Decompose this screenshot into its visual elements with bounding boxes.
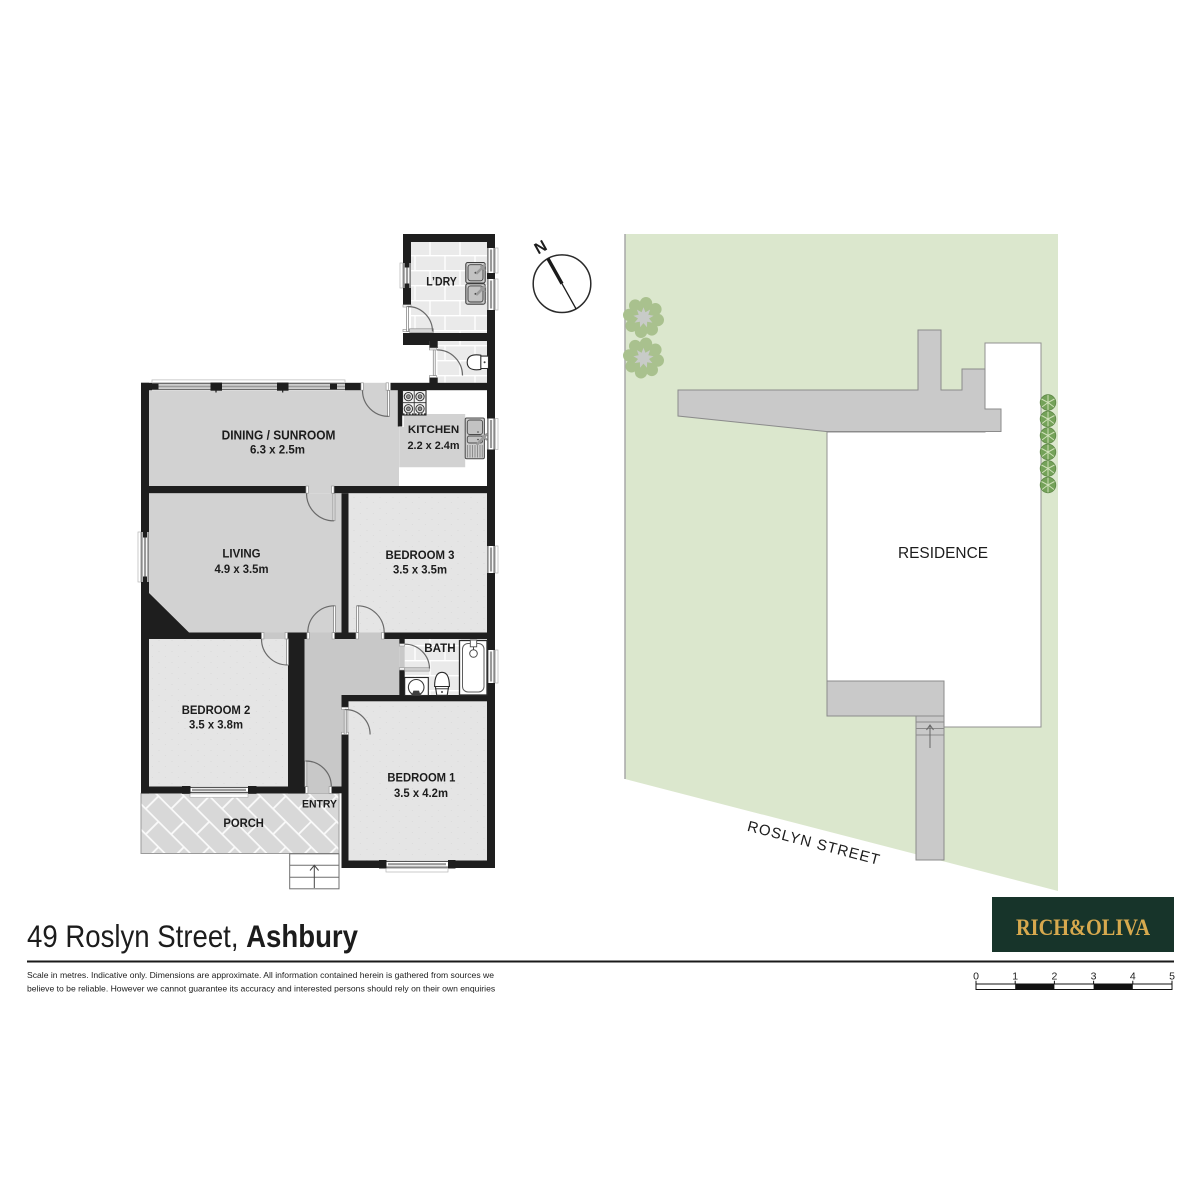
- svg-text:believe to be reliable. Howeve: believe to be reliable. However we canno…: [27, 984, 495, 994]
- svg-text:L’DRY: L’DRY: [426, 275, 457, 289]
- svg-text:Scale in metres. Indicative on: Scale in metres. Indicative only. Dimens…: [27, 970, 494, 980]
- svg-text:PORCH: PORCH: [223, 816, 264, 830]
- svg-text:N: N: [532, 238, 550, 258]
- svg-text:2.2 x 2.4m: 2.2 x 2.4m: [408, 440, 460, 452]
- svg-text:ENTRY: ENTRY: [302, 799, 338, 811]
- svg-text:LIVING: LIVING: [222, 547, 260, 561]
- svg-text:BEDROOM 3: BEDROOM 3: [386, 548, 455, 562]
- svg-text:BEDROOM 1: BEDROOM 1: [387, 771, 455, 785]
- svg-text:3.5 x 4.2m: 3.5 x 4.2m: [394, 786, 448, 800]
- svg-text:6.3 x 2.5m: 6.3 x 2.5m: [250, 443, 305, 457]
- svg-text:3.5 x 3.5m: 3.5 x 3.5m: [393, 563, 447, 577]
- svg-text:3.5 x 3.8m: 3.5 x 3.8m: [189, 718, 243, 732]
- svg-text:BATH: BATH: [424, 641, 455, 655]
- svg-text:49 Roslyn Street, Ashbury: 49 Roslyn Street, Ashbury: [27, 918, 358, 954]
- svg-text:4.9 x 3.5m: 4.9 x 3.5m: [215, 562, 269, 576]
- svg-text:RICH&OLIVA: RICH&OLIVA: [1016, 915, 1150, 940]
- svg-text:DINING / SUNROOM: DINING / SUNROOM: [222, 429, 336, 443]
- svg-text:RESIDENCE: RESIDENCE: [898, 545, 988, 562]
- svg-text:KITCHEN: KITCHEN: [408, 424, 459, 436]
- svg-text:BEDROOM 2: BEDROOM 2: [182, 703, 251, 717]
